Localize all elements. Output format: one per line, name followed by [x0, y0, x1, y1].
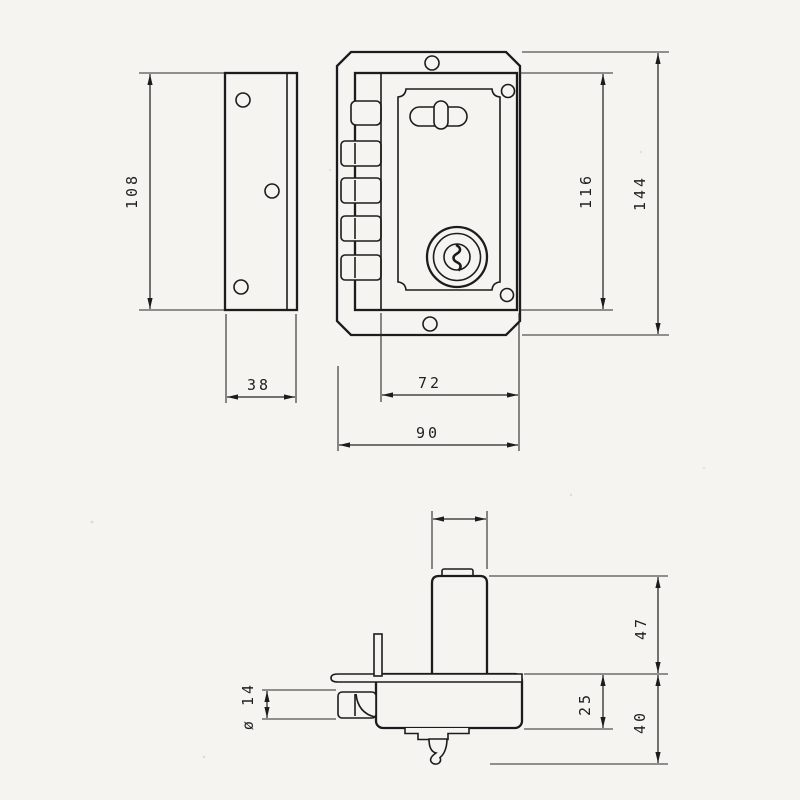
mounting-plate [374, 634, 382, 676]
mounting-hole [236, 93, 250, 107]
spindle-drop [429, 739, 447, 764]
mounting-hole [265, 184, 279, 198]
dimension-47: 47 [632, 577, 658, 673]
bottom-bracket [405, 728, 469, 740]
case-screw-hole [502, 85, 515, 98]
dim-label-40: 40 [631, 710, 649, 734]
strike-plate-view: 108 38 [123, 73, 297, 403]
dim-label-108: 108 [123, 173, 141, 209]
technical-drawing: 108 38 [0, 0, 800, 800]
dim-label-144: 144 [631, 175, 649, 211]
dimension-40: 40 [631, 675, 658, 763]
dim-label-72: 72 [418, 374, 442, 392]
latch-retracted [351, 101, 381, 125]
key-cylinder [427, 227, 487, 287]
cylinder-body [432, 576, 487, 675]
thumb-slide-knob [434, 101, 448, 129]
mounting-hole [234, 280, 248, 294]
lock-bolt [341, 178, 381, 203]
dimension-116: 116 [519, 73, 613, 310]
dimension-diameter-14: ø 14 [239, 682, 336, 730]
lock-front-view: 116 144 72 90 [337, 52, 669, 451]
dim-label-47: 47 [632, 616, 650, 640]
dimension-38: 38 [226, 314, 296, 403]
faceplate-hole [425, 56, 439, 70]
lock-bolt [341, 216, 381, 241]
dimension-25: 25 [576, 675, 603, 728]
dimension-108: 108 [123, 73, 224, 310]
dim-label-25: 25 [576, 692, 594, 716]
dim-label-90: 90 [416, 424, 440, 442]
faceplate-hole [423, 317, 437, 331]
dimension-144: 144 [522, 52, 669, 335]
latch-bolt [338, 692, 376, 718]
lock-bolt [341, 141, 381, 166]
dim-label-116: 116 [577, 173, 595, 209]
lock-bolt [341, 255, 381, 280]
dim-label-38: 38 [247, 376, 271, 394]
lock-side-view: 47 25 40 ø 14 [239, 511, 668, 764]
dimension-cylinder-width [432, 511, 487, 569]
case-screw-hole [501, 289, 514, 302]
top-flange [331, 674, 522, 682]
dim-label-diameter-14: ø 14 [239, 682, 257, 730]
